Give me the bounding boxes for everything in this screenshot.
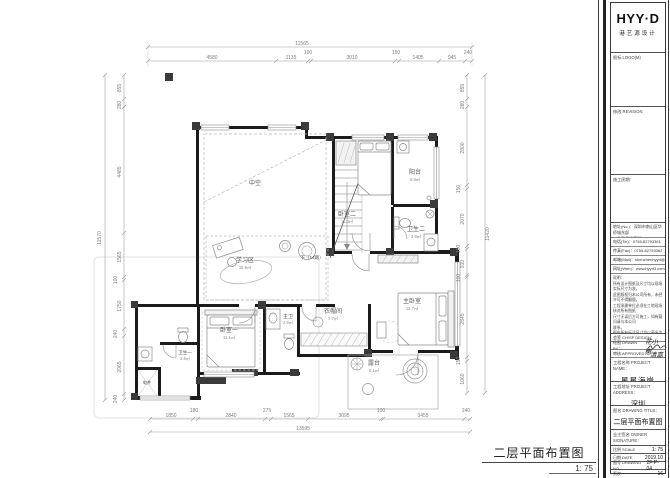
dim: 100 xyxy=(456,274,462,283)
pillow xyxy=(210,317,229,325)
title-block: HYY·D 港艺源设计 图标 LOGO(M) 修改 REVISION 施工图期:… xyxy=(610,2,666,474)
desk xyxy=(213,237,244,258)
room-area: 3.9㎡ xyxy=(411,233,422,239)
chief-signature-scribble xyxy=(645,343,667,355)
dim: 100 xyxy=(304,50,313,56)
washbasin-counter xyxy=(138,347,152,361)
floor-drain xyxy=(427,196,431,200)
vanity xyxy=(424,234,438,251)
page-row: 页次 16 xyxy=(611,470,665,478)
note-line: 工程承建单位必须在工地现场核对所有图纸 xyxy=(613,304,663,315)
project-address: 深圳 xyxy=(613,396,663,406)
room-label: 主卧室 xyxy=(403,297,421,305)
terrace-furniture xyxy=(348,355,438,409)
pillow xyxy=(439,296,446,316)
room-label: 中空 xyxy=(249,179,261,187)
dim: 150 xyxy=(456,185,462,194)
dim-total-left: 11570 xyxy=(97,231,103,245)
room-area: 11.1㎡ xyxy=(223,334,236,340)
stool xyxy=(313,317,323,327)
pillow xyxy=(360,143,373,150)
headboard xyxy=(448,291,454,347)
field-label: 工程地址 PROJECT ADDRESS： xyxy=(613,384,663,396)
room-area: 11.5㎡ xyxy=(341,218,354,224)
bedroom2-furniture xyxy=(336,141,438,251)
section-label: 施工图期: xyxy=(613,177,631,182)
dim: 240 xyxy=(113,330,119,339)
note-line: 尺寸无误后方可施工，如有疑问请与本公司 xyxy=(613,315,663,326)
pillow xyxy=(376,143,389,150)
room-area: 6.1㎡ xyxy=(369,367,380,373)
room-label: 电井 xyxy=(143,379,151,386)
room-label: 衣帽间 xyxy=(324,307,342,315)
dim: 910 xyxy=(460,260,466,269)
section-label: 图标 LOGO(M) xyxy=(613,55,641,60)
rattan-chair xyxy=(403,359,427,383)
drawing-caption: 二层平面布置图 1: 75 xyxy=(482,444,596,474)
logo-box: HYY·D 港艺源设计 xyxy=(611,3,665,53)
project-name: 星星海岸 xyxy=(613,372,663,382)
room-area: 13.7㎡ xyxy=(406,305,419,311)
dim: 1565 xyxy=(283,413,294,419)
field-label: 业主签名 OWNER SIGNATURE： xyxy=(613,432,663,444)
room-label: 学习区 xyxy=(236,256,254,264)
section-label: 修改 REVISION xyxy=(613,109,643,114)
dim: 1135 xyxy=(286,55,297,61)
meta-label: 比例 SCALE xyxy=(613,447,635,453)
dim: 240 xyxy=(464,50,473,56)
headboard xyxy=(205,310,257,315)
drawing-title-cell: 图名 DRAWING TITLE： 二层平面布置图 xyxy=(611,406,665,430)
dim-total-bottom: 13595 xyxy=(296,426,310,432)
washer xyxy=(397,141,409,153)
field-label: 图名 DRAWING TITLE： xyxy=(613,408,663,414)
room-labels: 中空 阳台 5.9㎡ 卧室二 11.5㎡ 卫生二 3.9㎡ 学习区 15.9㎡ … xyxy=(143,168,425,386)
dim: 100 xyxy=(113,276,119,285)
drawing-no-value: 2F-P-04 xyxy=(646,460,663,472)
dim: 275 xyxy=(263,408,272,414)
sheet-border-thick xyxy=(603,0,606,478)
dim: 150 xyxy=(392,50,401,56)
owner-signature-cell: 业主签名 OWNER SIGNATURE： xyxy=(611,430,665,446)
note-line: 所有设计图纸及尺寸均以现场实际尺寸为准， xyxy=(613,282,663,293)
toilet xyxy=(284,334,294,338)
dim: 240 xyxy=(462,408,471,414)
notes-block: 说明： 所有设计图纸及尺寸均以现场实际尺寸为准， 此图版权归本公司所有，未经许可… xyxy=(611,274,665,334)
room-area: 15.9㎡ xyxy=(239,264,252,270)
company-logo-subtitle: 港艺源设计 xyxy=(613,29,663,37)
dim: 4485 xyxy=(117,166,123,177)
field-label: 工程名称 PROJECT NAME： xyxy=(613,360,663,372)
dim: 945 xyxy=(448,55,457,61)
project-name-cell: 工程名称 PROJECT NAME： 星星海岸 xyxy=(611,358,665,382)
round-table xyxy=(363,384,374,395)
dim: 2845 xyxy=(460,313,466,324)
address-row: 地址(No.)：深圳市南山区华侨城东部 工业区侨香官邸H3-107A xyxy=(611,223,665,238)
room-area: 2.5㎡ xyxy=(283,319,294,325)
bath1-fixtures xyxy=(138,328,188,396)
closet-furniture xyxy=(301,317,367,346)
logo-section: 图标 LOGO(M) xyxy=(611,53,665,107)
dim: 1060 xyxy=(460,373,466,384)
vanity xyxy=(266,309,280,329)
web-row: 网址(Web)：www.hyyd3.com xyxy=(611,265,665,274)
dim: 2840 xyxy=(225,413,236,419)
meta-label: 图号 DRAWING NO. xyxy=(613,460,646,471)
dim: 280 xyxy=(460,101,466,110)
stair-arrow xyxy=(344,244,350,250)
note-line: 此图版权归本公司所有，未经许可不得翻版。 xyxy=(613,293,663,304)
toilet xyxy=(394,217,399,229)
drawing-title: 二层平面布置图 xyxy=(613,414,663,430)
study-area-furniture xyxy=(206,236,328,300)
dim-total-top: 11565 xyxy=(295,41,309,47)
dim: 3010 xyxy=(346,55,357,61)
room-label: 卧室二 xyxy=(338,210,356,218)
address-line1: 地址(No.)：深圳市南山区华侨城东部 xyxy=(613,224,663,236)
room-label: 卫生二 xyxy=(407,225,425,233)
dim: 2065 xyxy=(117,361,123,372)
revision-section: 修改 REVISION xyxy=(611,107,665,175)
room-label: 阳台 xyxy=(409,168,421,176)
pouf xyxy=(280,241,291,252)
mail-row: 邮箱(Mail)：shenzhenhyyd@163.com xyxy=(611,256,665,265)
dim-total-right: 11420 xyxy=(485,227,491,241)
dim: 3455 xyxy=(417,413,428,419)
room-area: 5.9㎡ xyxy=(410,176,421,182)
room-label: 卧室一 xyxy=(220,326,238,334)
dim: 280 xyxy=(117,101,123,110)
room-label: 主卫 xyxy=(283,313,293,320)
room-label: 露台 xyxy=(368,359,380,367)
sheet-edge-line xyxy=(668,0,669,478)
dim: 100 xyxy=(456,245,462,254)
dim: 240 xyxy=(113,395,119,404)
scale-value: 1: 75 xyxy=(652,447,663,453)
pillow xyxy=(233,317,252,325)
dim: 4580 xyxy=(206,55,217,61)
company-logo: HYY·D xyxy=(613,11,663,26)
tel-row: 电话(Tel)：0755-82793361 xyxy=(611,238,665,247)
floor-plan-canvas: 中空 阳台 5.9㎡ 卧室二 11.5㎡ 卫生二 3.9㎡ 学习区 15.9㎡ … xyxy=(0,0,600,478)
dim: 150 xyxy=(456,357,462,366)
room-area: 7.7㎡ xyxy=(328,315,339,321)
pillow xyxy=(439,321,446,341)
caption-title: 二层平面布置图 xyxy=(482,444,596,463)
drawing-sheet: 中空 阳台 5.9㎡ 卧室二 11.5㎡ 卫生二 3.9㎡ 学习区 15.9㎡ … xyxy=(0,0,670,478)
stair-note: 下（14踏） xyxy=(300,254,324,261)
stage-section: 施工图期: xyxy=(611,175,665,223)
dim: 1405 xyxy=(412,55,423,61)
dim: 100 xyxy=(377,408,386,414)
dresser xyxy=(378,255,418,263)
dim: 180 xyxy=(190,408,199,414)
bedroom1-furniture xyxy=(202,310,260,370)
dim: 3095 xyxy=(338,413,349,419)
caption-scale: 1: 75 xyxy=(549,463,596,474)
dim: 855 xyxy=(117,84,123,93)
drawing-no-row: 图号 DRAWING NO. 2F-P-04 xyxy=(611,462,665,470)
fax-row: 传真(Fax)：0755-82793362 xyxy=(611,247,665,256)
dim: 1750 xyxy=(117,300,123,311)
page-value: 16 xyxy=(657,471,663,477)
dim: 855 xyxy=(460,84,466,93)
project-address-cell: 工程地址 PROJECT ADDRESS： 深圳 xyxy=(611,382,665,406)
dim: 1850 xyxy=(165,413,176,419)
sheet-border-line xyxy=(598,0,599,478)
meta-label: 页次 xyxy=(613,471,621,477)
room-area: 2.8㎡ xyxy=(180,355,191,361)
sign-label: 审核 APPROVED： xyxy=(613,351,648,357)
dim: 2070 xyxy=(460,213,466,224)
contact-block: 地址(No.)：深圳市南山区华侨城东部 工业区侨香官邸H3-107A 电话(Te… xyxy=(611,223,665,274)
void-dashed-lines xyxy=(204,134,326,300)
room-label: 卫生一 xyxy=(178,349,192,355)
dim: 1565 xyxy=(117,251,123,262)
scale-row: 比例 SCALE 1: 75 xyxy=(611,446,665,454)
dim: 2800 xyxy=(460,142,466,153)
bench xyxy=(377,322,386,338)
